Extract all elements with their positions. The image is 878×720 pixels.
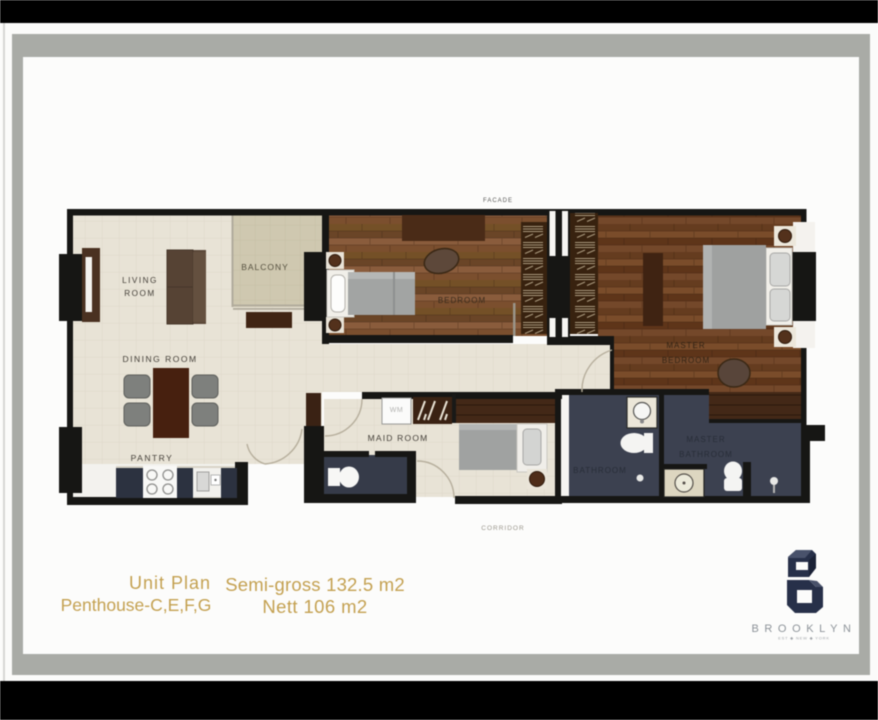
svg-text:ROOM: ROOM [124,289,155,298]
svg-text:BATHROOM: BATHROOM [679,450,733,459]
svg-text:PANTRY: PANTRY [131,453,174,463]
svg-text:CORRIDOR: CORRIDOR [481,525,524,532]
svg-text:BATHROOM: BATHROOM [573,466,627,475]
svg-text:FACADE: FACADE [483,198,513,204]
svg-text:MASTER: MASTER [666,341,705,350]
svg-text:BEDROOM: BEDROOM [438,296,486,305]
svg-text:Penthouse-C,E,F,G: Penthouse-C,E,F,G [61,595,212,615]
svg-text:MASTER: MASTER [686,435,725,444]
svg-text:LIVING: LIVING [122,276,158,285]
svg-text:EST ◆ NEW ◆ YORK: EST ◆ NEW ◆ YORK [778,636,830,641]
svg-text:Nett 106 m2: Nett 106 m2 [262,596,367,617]
svg-text:WM: WM [390,407,403,414]
svg-text:BROOKLYN: BROOKLYN [751,623,856,635]
svg-text:Semi-gross 132.5 m2: Semi-gross 132.5 m2 [225,574,405,595]
svg-text:Unit Plan: Unit Plan [129,573,211,593]
svg-text:MAID ROOM: MAID ROOM [368,433,429,443]
svg-text:BEDROOM: BEDROOM [662,356,710,365]
svg-text:DINING ROOM: DINING ROOM [122,354,197,364]
svg-text:BALCONY: BALCONY [241,262,289,272]
